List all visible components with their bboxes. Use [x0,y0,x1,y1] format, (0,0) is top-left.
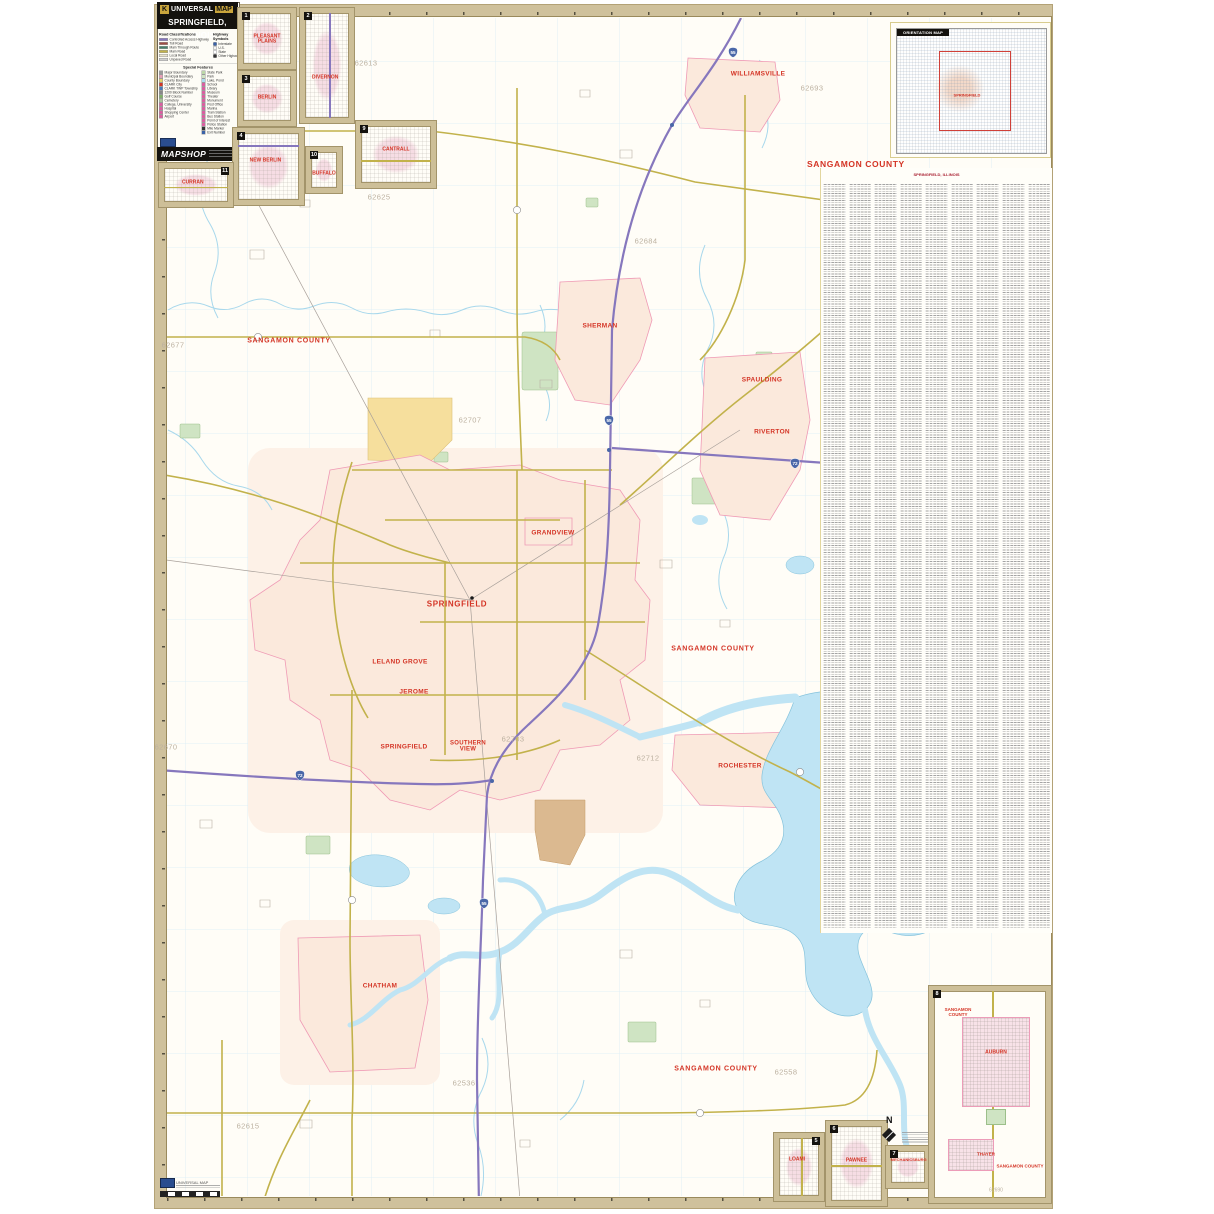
inset-zip-label: 62690 [989,1188,1003,1194]
legend-symbol-swatch [159,115,163,119]
legend-row-label: State [218,50,226,54]
brand-name: UNIVERSAL [171,6,213,13]
legend-hwy-symbol-list: Interstate U.S. State Other Highway [213,42,240,58]
legend-row-label: Lake, Pond [207,79,223,83]
inset-loami: 5 LOAMI [774,1133,824,1201]
zip-62703: 62703 [502,735,525,744]
inset-mechanicsburg: 7 MECHANICSBURG [886,1146,930,1188]
inset-number-badge: 2 [304,12,312,20]
zip-62536: 62536 [453,1079,476,1088]
footer-publisher-logo [160,1178,175,1188]
town-label-jerome: JEROME [399,689,428,696]
legend-road-section: Road Classifications Controlled Access H… [159,31,209,62]
legend-symbol-swatch [202,131,206,135]
inset-road-line [801,1138,803,1196]
legend-road-header: Road Classifications [159,32,209,37]
street-index-columns [823,184,1050,929]
inset-number-badge: 7 [890,1150,898,1158]
inset-minimap [780,1139,818,1195]
mapshop-address-lines [209,150,234,158]
inset-label: BERLIN [258,95,277,101]
legend-row-label: Local Road [170,54,186,58]
inset-number-badge: 8 [933,990,941,998]
footer-credit-lines [176,1185,220,1190]
legend-row: Other Highway [213,54,240,58]
legend-row: Unpaved Road [159,58,209,62]
legend-body: Road Classifications Controlled Access H… [159,31,237,135]
north-label: N [886,1115,893,1125]
legend-line-swatch [159,46,168,49]
street-index-panel: SANGAMON COUNTY SPRINGFIELD, ILLINOIS [820,168,1052,933]
legend-line-swatch [159,38,168,41]
inset-label: CURRAN [182,181,204,187]
svg-text:55: 55 [606,418,612,423]
zip-62613: 62613 [355,59,378,68]
legend-row-label: Point of Interest [207,119,230,123]
legend-row-label: State Park [207,71,222,75]
legend-row-label: College, University [165,103,192,107]
street-index-title: SANGAMON COUNTY [807,159,905,169]
legend-row-label: Theater [207,95,218,99]
legend-row-label: U.S. [218,46,224,50]
inset-number-badge: 10 [310,151,318,159]
brand-map-word: MAP [215,6,233,13]
town-label-sherman: SHERMAN [583,323,618,330]
zip-62707: 62707 [459,416,482,425]
inset-road-line [831,1165,882,1167]
inset-interstate-line [238,145,299,147]
town-label-springfield-south: SPRINGFIELD [381,744,428,751]
inset-divernon: 2 DIVERNON [300,8,354,123]
inset-new-berlin: 4 NEW BERLIN [233,128,304,205]
zip-62670: 62670 [155,743,178,752]
legend-row-label: Exit Number [207,131,225,135]
inset-pleasant-plains: 1 PLEASANT PLAINS [238,8,296,69]
inset-label: PLEASANT PLAINS [247,34,287,45]
legend-row-label: Municipal Boundary [165,75,194,79]
legend-row-label: Museum [207,91,219,95]
legend-row-label: Police Station [207,123,227,127]
town-label-southern-view: SOUTHERN VIEW [449,741,487,754]
scale-note-lines [902,1132,928,1144]
orientation-extent-rect [939,51,1011,131]
svg-text:55: 55 [481,901,487,906]
zip-62558: 62558 [775,1068,798,1077]
legend-row-label: CLARK City [165,83,182,87]
legend-special-header: Special Features [159,64,237,70]
airport-area [368,398,452,462]
legend-row-label: Unpaved Road [170,58,192,62]
legend-row-label: Cemetery [165,99,179,103]
legend-row-label: Main Through Route [170,46,200,50]
orientation-map: ORIENTATION MAP SPRINGFIELD [896,28,1047,154]
town-label-chatham: CHATHAM [363,983,397,990]
legend-hwy-header: Highway Symbols [213,32,240,41]
legend-row-label: Library [207,87,217,91]
inset-number-badge: 9 [360,125,368,133]
legend-line-swatch [159,50,168,53]
legend-line-swatch [159,58,168,61]
inset-berlin: 3 BERLIN [238,71,296,126]
mapshop-wordmark: MAPSHOP [161,149,206,159]
inset-thayer-label: THAYER [977,1153,995,1158]
inset-number-badge: 11 [221,167,229,175]
svg-text:55: 55 [730,50,736,55]
index-column [1028,184,1051,929]
index-column [874,184,897,929]
legend-row-label: 1200 Block Number [165,91,194,95]
auburn-town-blob [962,1017,1030,1107]
index-column [900,184,923,929]
inset-minimap [362,127,430,182]
legend-row-label: Marina [207,107,217,111]
inset-cantrall: 9 CANTRALL [356,121,436,188]
legend-brand-bar: K UNIVERSAL MAP [157,2,238,16]
legend-special-right-list: State Park Park Lake, Pond School Librar… [202,71,237,135]
index-column [849,184,872,929]
legend-row-label: Monument [207,99,222,103]
inset-number-badge: 6 [830,1125,838,1133]
legend-row-label: Train Station [207,111,225,115]
zip-62677: 62677 [162,341,185,350]
inset-label: PAWNEE [846,1158,867,1164]
publisher-logo-small [160,138,176,147]
legend-row: Airport [159,115,198,119]
legend-row-label: Post Office [207,103,223,107]
inset-label: LOAMI [789,1157,805,1163]
svg-text:72: 72 [297,773,303,778]
inset-minimap [832,1127,881,1200]
legend-row-label: CLARK TWP Township [165,87,198,91]
inset-buffalo: 10 BUFFALO [306,147,342,193]
inset-minimap [306,14,348,117]
legend-row-label: Major Boundary [165,71,188,75]
legend-row-label: Hospital [165,107,177,111]
town-label-riverton: RIVERTON [754,429,790,436]
inset-auburn-county: 8 SANGAMON COUNTY AUBURN THAYER SANGAMON… [929,986,1051,1203]
inset-county-label-se: SANGAMON COUNTY [997,1165,1044,1170]
county-label-nw: SANGAMON COUNTY [247,338,331,345]
mapshop-bar: MAPSHOP [157,147,238,161]
svg-text:72: 72 [792,461,798,466]
legend-row-label: County Boundary [165,79,190,83]
inset-road-line [361,160,431,162]
legend-line-swatch [159,54,168,57]
inset-label: MECHANICSBURG [891,1158,927,1162]
legend-row-label: Airport [165,115,175,119]
legend-road-class-list: Controlled Access Highway Toll Road Main… [159,38,209,62]
inset-number-badge: 1 [242,12,250,20]
zip-62684: 62684 [635,237,658,246]
brand-crest-icon: K [160,5,169,14]
inset-number-badge: 3 [242,75,250,83]
town-label-spaulding: SPAULDING [742,377,783,384]
orientation-center-label: SPRINGFIELD [954,93,981,98]
index-column [823,184,846,929]
inset-number-badge: 5 [812,1137,820,1145]
zip-62693: 62693 [801,84,824,93]
inset-park-patch [986,1109,1006,1125]
town-label-grandview: GRANDVIEW [531,530,574,537]
inset-label: BUFFALO [312,171,336,177]
legend-row-label: Bus Station [207,115,224,119]
index-column [1002,184,1025,929]
legend-row-label: Controlled Access Highway [170,38,209,42]
legend-row-label: Toll Road [170,42,184,46]
county-label-s: SANGAMON COUNTY [674,1066,758,1073]
inset-number-badge: 4 [237,132,245,140]
legend-row-label: Other Highway [218,54,240,58]
town-label-springfield: SPRINGFIELD [427,600,487,609]
inset-interstate-line [329,13,331,118]
legend-row-label: Mile Marker [207,127,224,131]
map-title: SPRINGFIELD, ILLINOIS [157,16,238,29]
inset-label: DIVERNON [312,75,338,81]
legend-row-label: Interstate [218,42,232,46]
legend-row-label: Shopping Center [165,111,189,115]
zip-62625: 62625 [368,193,391,202]
zip-62615: 62615 [237,1122,260,1131]
inset-road-line [164,187,228,189]
town-label-leland-grove: LELAND GROVE [372,659,427,666]
orientation-map-title: ORIENTATION MAP [897,29,949,36]
zip-62712: 62712 [637,754,660,763]
scale-bar [160,1191,220,1197]
inset-county-label-nw: SANGAMON COUNTY [938,1008,978,1018]
legend-shield-swatch [213,54,217,58]
inset-curran: 11 CURRAN [159,163,233,207]
legend-row-label: School [207,83,217,87]
index-column [925,184,948,929]
legend-special-left-list: Major Boundary Municipal Boundary County… [159,71,198,135]
street-index-subtitle: SPRINGFIELD, ILLINOIS [821,172,1052,177]
legend-hwy-section: Highway Symbols Interstate U.S. State Ot… [213,31,240,62]
inset-pawnee: 6 PAWNEE [826,1121,887,1206]
legend-row: Exit Number [202,131,237,135]
legend-line-swatch [159,42,168,45]
index-column [976,184,999,929]
town-label-rochester: ROCHESTER [718,763,762,770]
town-label-williamsville: WILLIAMSVILLE [731,71,785,78]
legend-row-label: Main Road [170,50,186,54]
inset-label: AUBURN [985,1050,1007,1056]
county-label-e: SANGAMON COUNTY [671,646,755,653]
inset-label: CANTRALL [382,147,409,153]
inset-minimap [239,134,298,199]
inset-label: NEW BERLIN [245,158,285,164]
index-column [951,184,974,929]
legend-row-label: Park [207,75,214,79]
legend-row-label: Golf Course [165,95,182,99]
